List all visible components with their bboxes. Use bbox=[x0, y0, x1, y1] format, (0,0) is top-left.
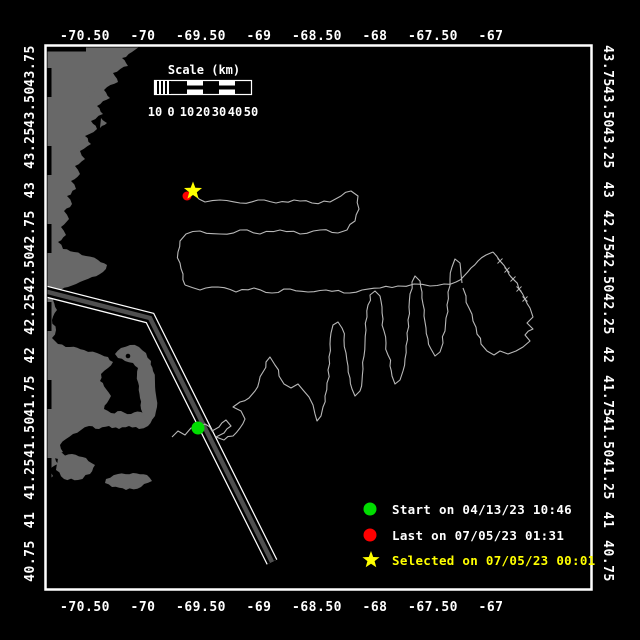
lat-label-right: 43 bbox=[600, 182, 615, 199]
scale-seg-stripe bbox=[187, 86, 203, 90]
lon-label-top: -68 bbox=[363, 29, 388, 44]
lat-label-right: 41.50 bbox=[600, 416, 615, 458]
scale-hatch-bar bbox=[165, 81, 167, 94]
start-marker[interactable] bbox=[192, 422, 205, 435]
scale-tick-label: 50 bbox=[244, 105, 258, 119]
lon-label-bottom: -70.50 bbox=[60, 600, 110, 615]
scale-tick-label: 10 bbox=[180, 105, 194, 119]
legend-start-label: Start on 04/13/23 10:46 bbox=[392, 502, 572, 517]
harbor-notch bbox=[126, 354, 131, 359]
lon-label-bottom: -70 bbox=[131, 600, 156, 615]
legend-last-label: Last on 07/05/23 01:31 bbox=[392, 528, 564, 543]
scale-tick-label: 0 bbox=[167, 105, 174, 119]
lat-label-left: 42.50 bbox=[23, 251, 38, 293]
lon-label-top: -70 bbox=[131, 29, 156, 44]
lon-label-bottom: -67 bbox=[479, 600, 504, 615]
scale-tick-label: 20 bbox=[196, 105, 210, 119]
lat-label-left: 43.75 bbox=[23, 45, 38, 87]
scale-bar-title: Scale (km) bbox=[168, 63, 240, 77]
lat-label-left: 40.75 bbox=[23, 540, 38, 582]
scale-bar-graphic bbox=[155, 81, 252, 95]
lon-label-bottom: -68.50 bbox=[292, 600, 342, 615]
lat-label-left: 41.50 bbox=[23, 416, 38, 458]
lon-label-bottom: -68 bbox=[363, 600, 388, 615]
scale-hatch-bar bbox=[161, 81, 163, 94]
lat-label-right: 42 bbox=[600, 347, 615, 364]
scale-tick-label: 40 bbox=[228, 105, 242, 119]
lat-label-left: 41.75 bbox=[23, 375, 38, 417]
legend-last-dot bbox=[364, 529, 377, 542]
scale-seg-stripe bbox=[219, 86, 235, 90]
lat-label-right: 43.75 bbox=[600, 45, 615, 87]
lat-label-right: 41 bbox=[600, 512, 615, 529]
lat-label-right: 42.75 bbox=[600, 210, 615, 252]
lat-label-left: 43 bbox=[23, 182, 38, 199]
lat-label-left: 41.25 bbox=[23, 458, 38, 500]
lat-label-left: 42.75 bbox=[23, 210, 38, 252]
lon-label-top: -68.50 bbox=[292, 29, 342, 44]
lat-label-left: 43.50 bbox=[23, 86, 38, 128]
lat-label-left: 42.25 bbox=[23, 293, 38, 335]
map-canvas: -70.50-70.50-70-70-69.50-69.50-69-69-68.… bbox=[0, 0, 640, 640]
lon-label-top: -67.50 bbox=[408, 29, 458, 44]
lon-label-bottom: -67.50 bbox=[408, 600, 458, 615]
lat-label-right: 40.75 bbox=[600, 540, 615, 582]
lat-label-right: 41.25 bbox=[600, 458, 615, 500]
lon-label-top: -70.50 bbox=[60, 29, 110, 44]
lon-label-top: -67 bbox=[479, 29, 504, 44]
lat-label-right: 43.25 bbox=[600, 127, 615, 169]
legend-start-dot bbox=[364, 503, 377, 516]
lon-label-bottom: -69.50 bbox=[176, 600, 226, 615]
scale-hatch-bar bbox=[157, 81, 159, 94]
scale-tick-label: 10 bbox=[148, 105, 162, 119]
lon-label-top: -69.50 bbox=[176, 29, 226, 44]
lat-label-right: 42.50 bbox=[600, 251, 615, 293]
lat-label-right: 43.50 bbox=[600, 86, 615, 128]
legend-selected-label: Selected on 07/05/23 00:01 bbox=[392, 553, 595, 568]
lat-label-right: 41.75 bbox=[600, 375, 615, 417]
lat-label-right: 42.25 bbox=[600, 293, 615, 335]
lon-label-bottom: -69 bbox=[247, 600, 272, 615]
scale-tick-label: 30 bbox=[212, 105, 226, 119]
lat-label-left: 41 bbox=[23, 512, 38, 529]
lat-label-left: 42 bbox=[23, 347, 38, 364]
scale-hatch-bar bbox=[169, 81, 171, 94]
legend: Start on 04/13/23 10:46 Last on 07/05/23… bbox=[362, 502, 595, 568]
lon-label-top: -69 bbox=[247, 29, 272, 44]
lat-label-left: 43.25 bbox=[23, 127, 38, 169]
